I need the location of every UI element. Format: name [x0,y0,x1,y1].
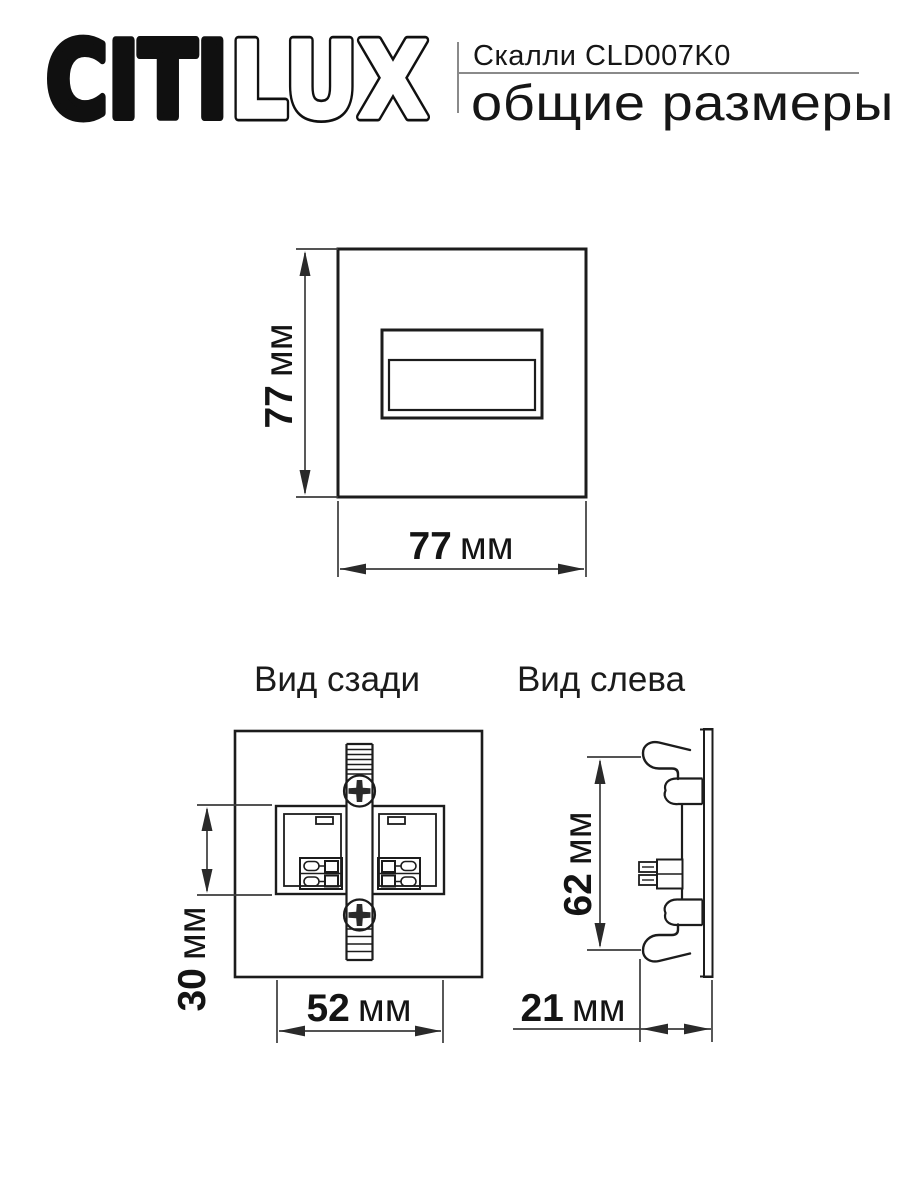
right-switch-module [371,806,444,894]
dimension-value: 21 [520,987,563,1030]
spring-clip-top [643,742,690,779]
dimension-unit: мм [557,811,600,865]
dimension-value: 30 [171,968,214,1011]
dimension-unit: мм [171,906,214,960]
window-bezel-inner [389,360,535,410]
dimension-sheet: CITI LUX LUX Скалли CLD007K0 общие разме… [0,0,899,1200]
dimension-unit: мм [460,525,514,568]
dimension-value: 62 [557,873,600,916]
front-height-label: 77мм [258,323,302,428]
rear-height-label: 30мм [171,906,215,1011]
faceplate-side [704,729,713,977]
rear-width-label: 52мм [306,987,411,1031]
dimension-value: 52 [306,987,349,1030]
left-view-title: Вид слева [517,660,685,700]
terminal-block [378,858,420,889]
technical-drawing [0,0,899,1200]
left-switch-module [276,806,349,894]
screw-barrel-bottom [665,899,703,925]
dimension-unit: мм [258,323,301,377]
phillips-screw-bottom-icon [344,900,375,931]
module-slot [388,817,405,824]
front-width-label: 77мм [408,525,513,569]
terminal-block [300,858,342,889]
window-bezel-outer [382,330,542,418]
terminal-block-side [639,860,683,889]
faceplate-outline [338,249,586,497]
phillips-screw-top-icon [344,776,375,807]
rear-view-title: Вид сзади [254,660,420,700]
dimension-value: 77 [258,385,301,428]
dimension-unit: мм [358,987,412,1030]
front-height-dimension [296,249,338,497]
dimension-value: 77 [408,525,451,568]
spring-clip-bottom [643,925,690,962]
left-height-label: 62мм [557,811,601,916]
dimension-unit: мм [572,987,626,1030]
screw-barrel-top [665,778,703,804]
depth-label: 21мм [520,987,625,1031]
module-slot [316,817,333,824]
